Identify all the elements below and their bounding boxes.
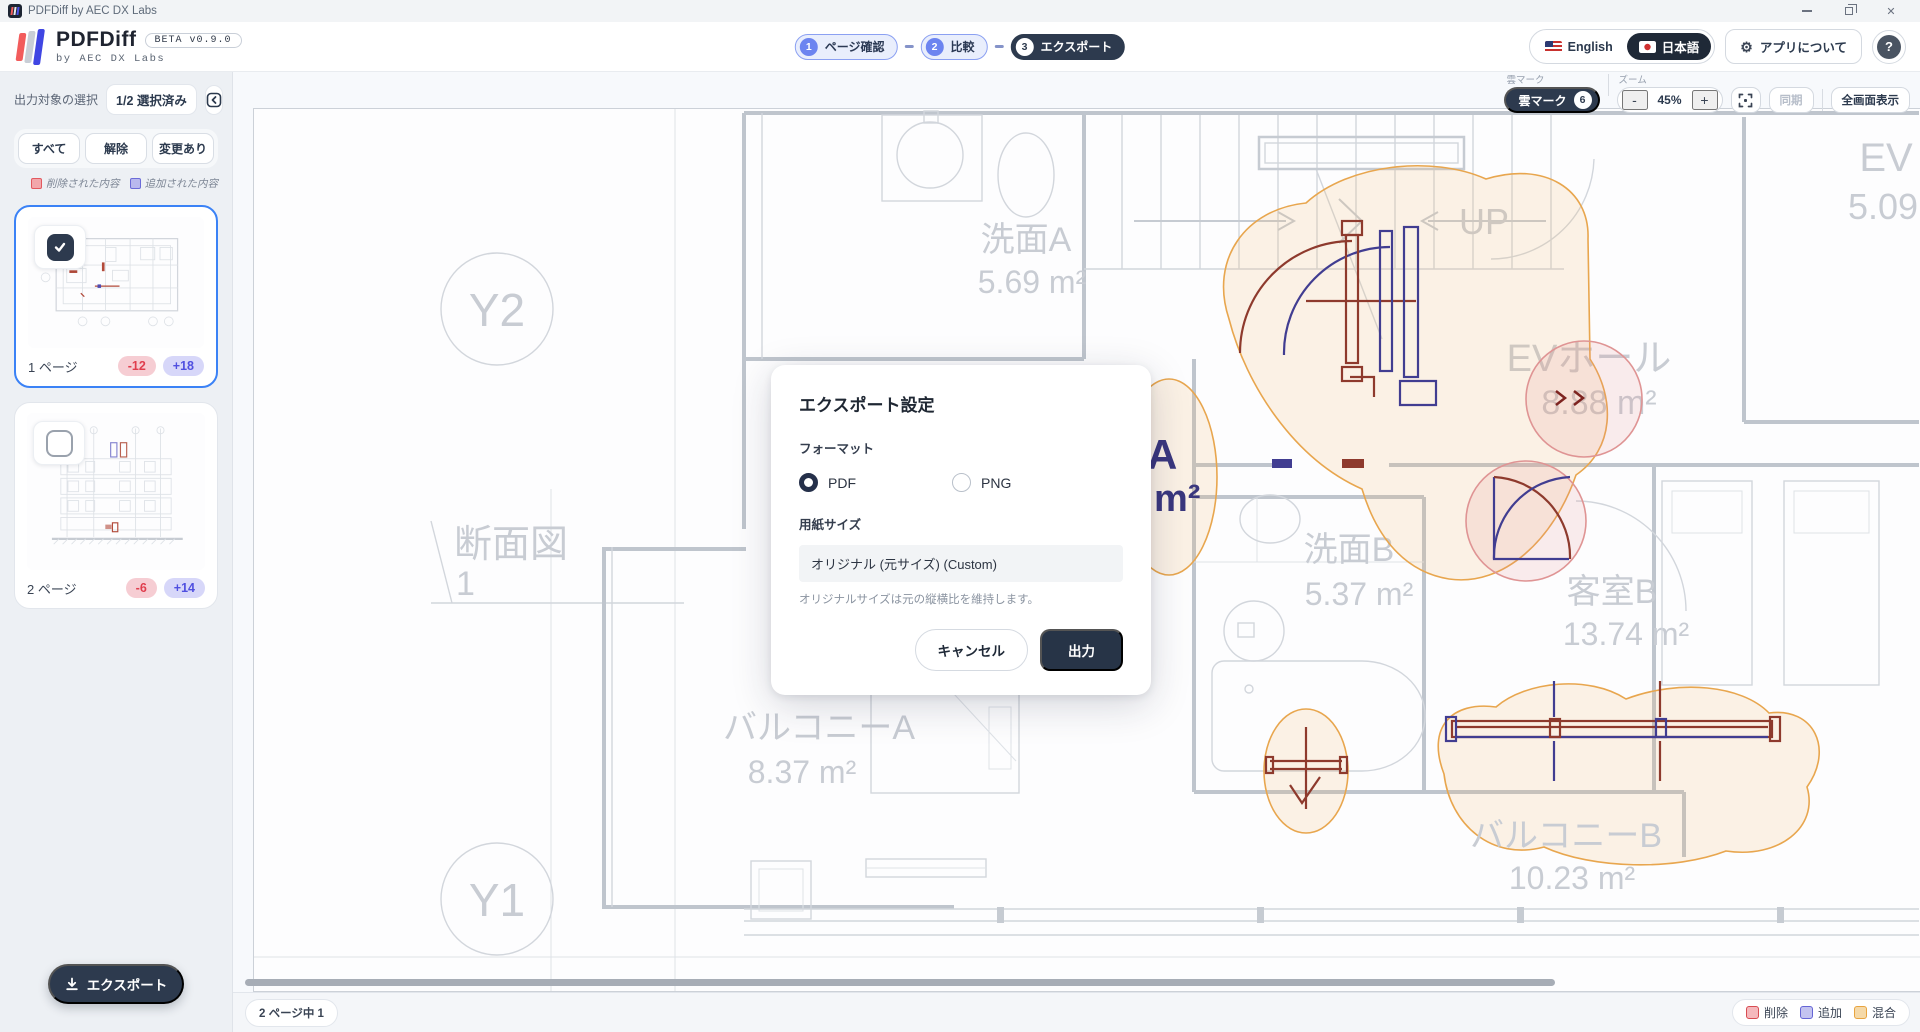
export-button-label: エクスポート <box>87 974 168 994</box>
step-export[interactable]: 3 エクスポート <box>1011 34 1126 60</box>
restore-button[interactable] <box>1828 0 1870 22</box>
beta-badge: BETA v0.9.0 <box>145 33 242 48</box>
cloud-mark-label: 雲マーク <box>1506 72 1599 86</box>
about-app-label: アプリについて <box>1760 37 1847 56</box>
output-button[interactable]: 出力 <box>1040 629 1123 671</box>
section-number: 1 <box>456 565 475 603</box>
cloud-mark-button[interactable]: 雲マーク 6 <box>1504 87 1599 113</box>
zoom-value: 45% <box>1648 93 1692 107</box>
page-2-label: 2 ページ <box>27 579 77 598</box>
app-logo: PDFDiff BETA v0.9.0 by AEC DX Labs <box>14 28 242 65</box>
page-thumbnail-1[interactable]: 1 ページ -12 +18 <box>14 205 218 388</box>
room-area-balcony-a: 8.37 m² <box>748 754 857 790</box>
selection-filters: すべて 解除 変更あり <box>14 129 218 168</box>
stepper: 1 ページ確認 2 比較 3 エクスポート <box>795 34 1125 60</box>
app-icon <box>8 4 22 18</box>
modal-title: エクスポート設定 <box>799 391 1123 416</box>
fullscreen-button[interactable]: 全画面表示 <box>1831 87 1911 113</box>
added-swatch <box>1800 1006 1813 1019</box>
selected-count-badge: 1/2 選択済み <box>106 84 197 115</box>
app-window: PDFDiff by AEC DX Labs ✕ PDFDiff BETA v0… <box>0 0 1920 1032</box>
step-label: エクスポート <box>1041 38 1113 55</box>
deselect-button[interactable]: 解除 <box>85 133 147 164</box>
help-button[interactable]: ? <box>1872 30 1906 64</box>
step-compare[interactable]: 2 比較 <box>921 34 988 60</box>
grid-bubble-y1: Y1 <box>469 874 525 926</box>
minimize-button[interactable] <box>1786 0 1828 22</box>
room-area-balcony-b: 10.23 m² <box>1509 860 1636 896</box>
room-label-kyakushitsu-b: 客室B <box>1567 573 1658 611</box>
room-area-ev: 5.09 m² <box>1848 186 1920 227</box>
download-icon <box>65 977 79 991</box>
sidebar: 出力対象の選択 1/2 選択済み すべて 解除 変更あり 削除された内容 追加さ… <box>0 72 233 1032</box>
page-indicator: 2 ページ中 1 <box>245 999 338 1027</box>
room-area-senmen-b: 5.37 m² <box>1305 576 1414 612</box>
restore-icon <box>1845 7 1853 15</box>
format-pdf-radio[interactable]: PDF <box>799 473 856 492</box>
horizontal-scrollbar[interactable] <box>245 979 1555 986</box>
room-label-senmen-b: 洗面B <box>1304 531 1395 569</box>
page-2-added-badge: +14 <box>164 578 205 598</box>
diff-blob-removed-ev-hall <box>1526 341 1642 457</box>
format-pdf-label: PDF <box>828 475 856 491</box>
diff-legend: 削除された内容 追加された内容 <box>14 176 218 191</box>
mixed-swatch <box>1854 1006 1867 1019</box>
page-1-added-badge: +18 <box>163 356 204 376</box>
fit-to-screen-button[interactable] <box>1731 87 1761 113</box>
export-settings-modal: エクスポート設定 フォーマット PDF PNG 用紙サイズ オリジナル (元サイ… <box>771 365 1151 695</box>
step-connector <box>905 45 914 48</box>
language-japanese-button[interactable]: 日本語 <box>1627 33 1712 60</box>
room-label-balcony-b: バルコニーB <box>1470 817 1662 855</box>
checkbox-unchecked-icon <box>46 430 73 457</box>
diff-blob-removed-door-b <box>1466 461 1586 581</box>
zoom-control: - 45% + <box>1617 87 1723 113</box>
step-connector <box>995 45 1004 48</box>
added-label: 追加 <box>1818 1004 1842 1021</box>
about-app-button[interactable]: ⚙ アプリについて <box>1725 29 1862 64</box>
zoom-out-button[interactable]: - <box>1622 90 1648 110</box>
cancel-button[interactable]: キャンセル <box>915 629 1029 671</box>
step-number: 3 <box>1016 38 1034 56</box>
step-number: 2 <box>926 38 944 56</box>
radio-unselected-icon <box>952 473 971 492</box>
language-english-button[interactable]: English <box>1533 36 1625 58</box>
room-area-senmen-a: 5.69 m² <box>978 264 1087 300</box>
zoom-in-button[interactable]: + <box>1692 90 1718 110</box>
language-japanese-label: 日本語 <box>1662 37 1700 56</box>
select-all-button[interactable]: すべて <box>18 133 80 164</box>
cloud-mark-button-label: 雲マーク <box>1518 92 1566 109</box>
added-color-swatch <box>130 178 141 189</box>
page-1-removed-badge: -12 <box>118 356 156 376</box>
step-page-check[interactable]: 1 ページ確認 <box>795 34 898 60</box>
diff-color-legend: 削除 追加 混合 <box>1732 999 1910 1026</box>
page-2-removed-badge: -6 <box>126 578 157 598</box>
titlebar: PDFDiff by AEC DX Labs ✕ <box>0 0 1920 22</box>
us-flag-icon <box>1545 41 1562 53</box>
removed-color-swatch <box>31 178 42 189</box>
room-label-ev: EV <box>1859 136 1913 180</box>
sidebar-collapse-button[interactable] <box>205 85 223 115</box>
step-label: 比較 <box>951 38 975 55</box>
close-button[interactable]: ✕ <box>1870 0 1912 22</box>
changed-only-button[interactable]: 変更あり <box>152 133 214 164</box>
zoom-label: ズーム <box>1619 72 1911 86</box>
grid-bubble-y2: Y2 <box>469 284 525 336</box>
step-label: ページ確認 <box>825 38 885 55</box>
format-png-radio[interactable]: PNG <box>952 473 1011 492</box>
page-1-checkbox[interactable] <box>34 225 86 269</box>
added-room-a-area: m² <box>1154 478 1200 520</box>
app-header: PDFDiff BETA v0.9.0 by AEC DX Labs 1 ページ… <box>0 22 1920 72</box>
format-label: フォーマット <box>799 438 1123 457</box>
section-label: 断面図 <box>454 524 568 566</box>
paper-size-select[interactable]: オリジナル (元サイズ) (Custom) <box>799 545 1123 582</box>
page-thumbnail-2[interactable]: 2 ページ -6 +14 <box>14 402 218 609</box>
fit-screen-icon <box>1738 93 1753 108</box>
question-icon: ? <box>1877 35 1901 59</box>
language-english-label: English <box>1568 40 1613 54</box>
sync-button[interactable]: 同期 <box>1769 87 1814 113</box>
checkbox-checked-icon <box>47 234 74 261</box>
window-title: PDFDiff by AEC DX Labs <box>28 5 157 17</box>
status-bar: 2 ページ中 1 削除 追加 混合 <box>233 992 1920 1032</box>
room-label-balcony-a: バルコニーA <box>723 709 915 747</box>
step-number: 1 <box>800 38 818 56</box>
export-button[interactable]: エクスポート <box>48 964 184 1004</box>
page-1-label: 1 ページ <box>28 357 78 376</box>
viewer-toolbar: 雲マーク 雲マーク 6 ズーム - 45% <box>1504 72 1910 108</box>
added-legend-label: 追加された内容 <box>145 178 219 190</box>
close-icon: ✕ <box>1886 5 1895 18</box>
added-room-a-label: A <box>1147 431 1177 478</box>
logo-subtitle: by AEC DX Labs <box>56 53 242 65</box>
gear-icon: ⚙ <box>1740 40 1753 54</box>
paper-size-hint: オリジナルサイズは元の縦横比を維持します。 <box>799 591 1123 607</box>
cloud-mark-count-badge: 6 <box>1574 91 1592 109</box>
language-toggle: English 日本語 <box>1529 29 1716 64</box>
sidebar-title: 出力対象の選択 <box>14 91 98 108</box>
removed-swatch <box>1746 1006 1759 1019</box>
room-label-senmen-a: 洗面A <box>981 221 1072 259</box>
removed-legend-label: 削除された内容 <box>46 178 120 190</box>
removed-label: 削除 <box>1764 1004 1788 1021</box>
logo-title: PDFDiff <box>56 28 137 52</box>
jp-flag-icon <box>1639 41 1656 53</box>
collapse-panel-icon <box>206 92 222 108</box>
mixed-label: 混合 <box>1872 1004 1896 1021</box>
toolbar-divider <box>1822 89 1823 111</box>
toolbar-divider <box>1608 74 1609 96</box>
room-area-kyakushitsu-b: 13.74 m² <box>1563 616 1690 652</box>
format-png-label: PNG <box>981 475 1011 491</box>
logo-icon <box>14 29 46 65</box>
main-viewer: 雲マーク 雲マーク 6 ズーム - 45% <box>233 72 1920 1032</box>
minimize-icon <box>1802 10 1812 12</box>
page-2-checkbox[interactable] <box>33 421 85 465</box>
paper-size-label: 用紙サイズ <box>799 514 1123 533</box>
radio-selected-icon <box>799 473 818 492</box>
